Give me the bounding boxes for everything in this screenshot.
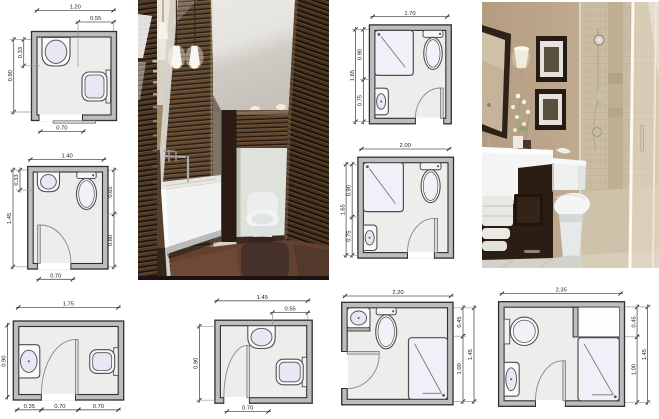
svg-text:1.65: 1.65 xyxy=(340,204,346,215)
svg-text:0.70: 0.70 xyxy=(242,406,253,412)
svg-text:2.00: 2.00 xyxy=(400,143,411,149)
svg-text:2.35: 2.35 xyxy=(556,288,567,294)
svg-text:1.65: 1.65 xyxy=(350,70,356,81)
svg-text:0.75: 0.75 xyxy=(346,231,352,242)
svg-text:1.70: 1.70 xyxy=(404,11,415,17)
svg-text:1.45: 1.45 xyxy=(7,213,13,224)
svg-text:0.70: 0.70 xyxy=(93,404,104,410)
svg-text:0.90: 0.90 xyxy=(194,358,200,369)
svg-text:1.45: 1.45 xyxy=(642,349,648,360)
svg-text:0.70: 0.70 xyxy=(50,274,61,280)
svg-text:1.75: 1.75 xyxy=(63,302,74,308)
svg-text:0.70: 0.70 xyxy=(54,404,65,410)
svg-text:0.33: 0.33 xyxy=(18,47,24,58)
svg-text:0.90: 0.90 xyxy=(8,70,14,81)
svg-text:2.20: 2.20 xyxy=(392,290,403,296)
svg-text:1.40: 1.40 xyxy=(61,154,72,160)
svg-text:1.45: 1.45 xyxy=(257,295,268,301)
svg-text:0.90: 0.90 xyxy=(2,356,8,367)
svg-text:0.55: 0.55 xyxy=(90,16,101,22)
svg-text:0.65: 0.65 xyxy=(108,186,114,197)
svg-text:1.20: 1.20 xyxy=(70,5,81,11)
svg-text:0.70: 0.70 xyxy=(56,126,67,132)
svg-text:0.35: 0.35 xyxy=(24,404,35,410)
svg-text:0.45: 0.45 xyxy=(457,316,463,327)
svg-text:0.75: 0.75 xyxy=(358,95,364,106)
svg-text:0.33: 0.33 xyxy=(14,174,20,185)
svg-text:1.00: 1.00 xyxy=(457,363,463,374)
svg-text:1.45: 1.45 xyxy=(468,349,474,360)
svg-text:0.90: 0.90 xyxy=(358,49,364,60)
svg-text:0.55: 0.55 xyxy=(285,307,296,313)
svg-text:1.00: 1.00 xyxy=(631,364,637,375)
svg-text:0.90: 0.90 xyxy=(346,185,352,196)
svg-text:0.80: 0.80 xyxy=(108,235,114,246)
svg-text:0.45: 0.45 xyxy=(631,316,637,327)
